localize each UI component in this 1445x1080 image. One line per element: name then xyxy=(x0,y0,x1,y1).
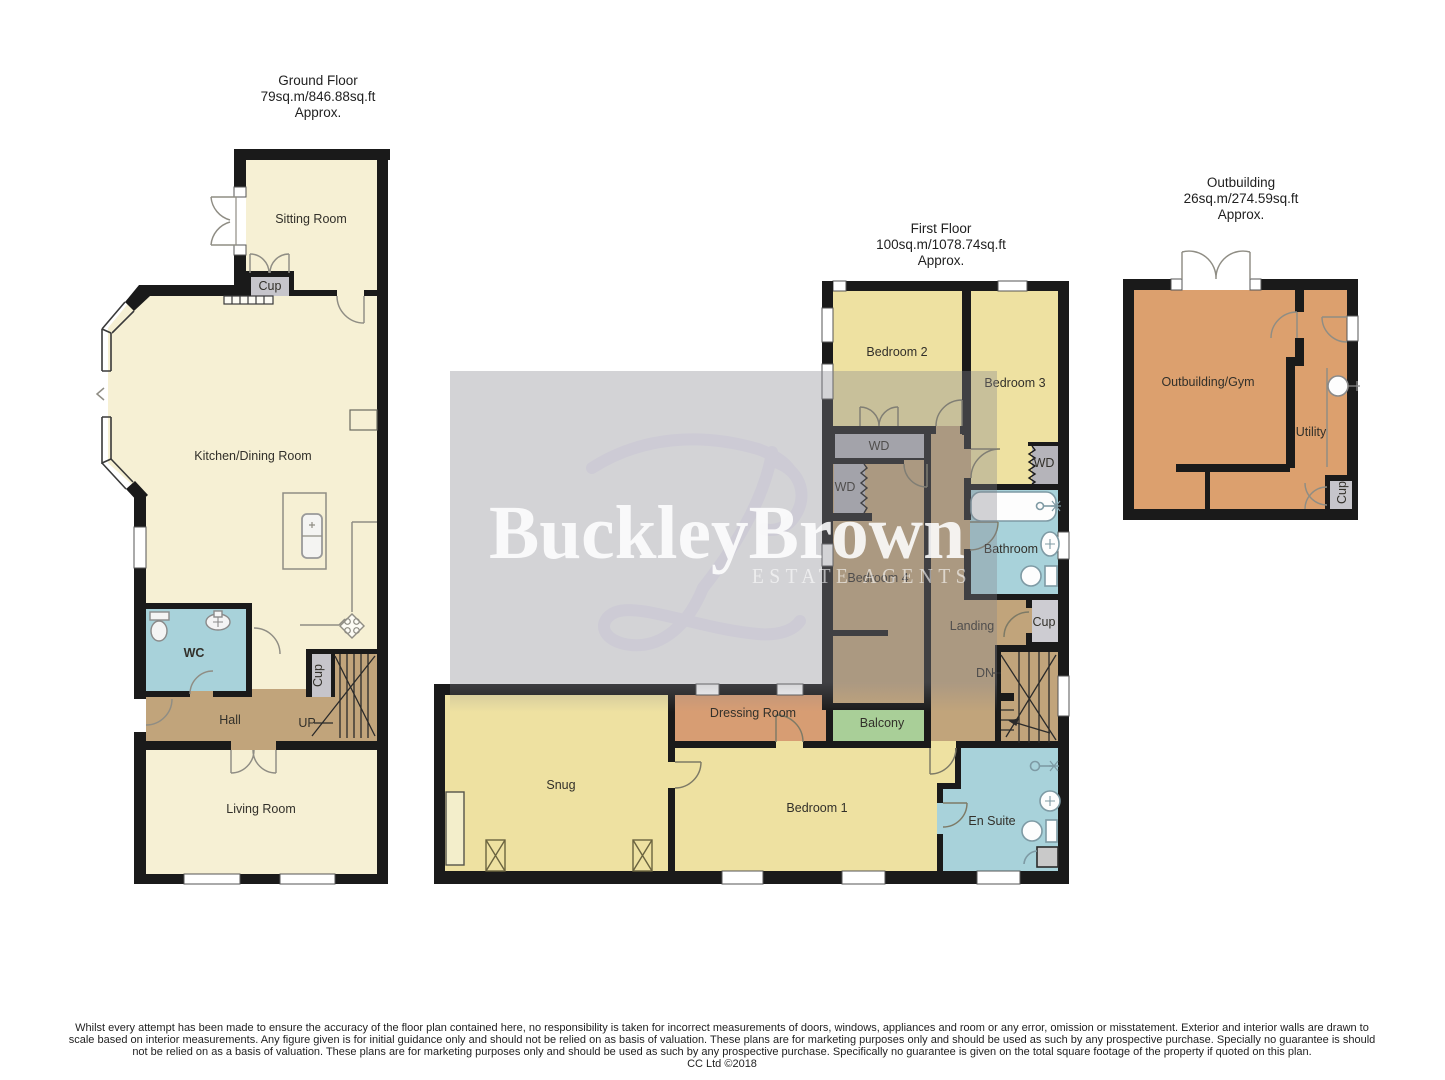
svg-text:En Suite: En Suite xyxy=(968,814,1015,828)
svg-text:Bedroom 2: Bedroom 2 xyxy=(866,345,927,359)
svg-text:Approx.: Approx. xyxy=(918,253,965,268)
svg-text:BuckleyBrown: BuckleyBrown xyxy=(489,491,965,575)
svg-text:Whilst every attempt has been: Whilst every attempt has been made to en… xyxy=(75,1022,1369,1034)
svg-text:Approx.: Approx. xyxy=(1218,207,1265,222)
svg-text:Sitting Room: Sitting Room xyxy=(275,212,347,226)
svg-text:Outbuilding: Outbuilding xyxy=(1207,175,1275,190)
svg-text:Living Room: Living Room xyxy=(226,802,295,816)
svg-text:Utility: Utility xyxy=(1296,425,1327,439)
svg-text:scale based on interior measur: scale based on interior measurements. An… xyxy=(69,1034,1376,1046)
svg-text:Bedroom 1: Bedroom 1 xyxy=(786,801,847,815)
svg-text:WC: WC xyxy=(184,646,205,660)
svg-text:26sq.m/274.59sq.ft: 26sq.m/274.59sq.ft xyxy=(1184,191,1299,206)
svg-text:First Floor: First Floor xyxy=(911,221,972,236)
svg-text:79sq.m/846.88sq.ft: 79sq.m/846.88sq.ft xyxy=(261,89,376,104)
svg-text:UP: UP xyxy=(298,716,315,730)
svg-text:Approx.: Approx. xyxy=(295,105,342,120)
svg-text:Cup: Cup xyxy=(311,664,325,687)
svg-text:Cup: Cup xyxy=(1033,615,1056,629)
svg-text:not be relied on as a basis of: not be relied on as a basis of valuation… xyxy=(132,1046,1311,1058)
svg-text:Hall: Hall xyxy=(219,713,241,727)
svg-text:Snug: Snug xyxy=(546,778,575,792)
svg-text:Ground Floor: Ground Floor xyxy=(278,73,358,88)
svg-text:CC Ltd ©2018: CC Ltd ©2018 xyxy=(687,1058,757,1070)
svg-text:Balcony: Balcony xyxy=(860,716,905,730)
svg-text:Cup: Cup xyxy=(259,279,282,293)
svg-text:Outbuilding/Gym: Outbuilding/Gym xyxy=(1161,375,1254,389)
svg-text:100sq.m/1078.74sq.ft: 100sq.m/1078.74sq.ft xyxy=(876,237,1006,252)
svg-text:Cup: Cup xyxy=(1335,481,1349,504)
svg-text:Kitchen/Dining Room: Kitchen/Dining Room xyxy=(194,449,311,463)
svg-text:WD: WD xyxy=(1034,456,1055,470)
svg-text:ESTATE AGENTS: ESTATE AGENTS xyxy=(752,564,972,588)
